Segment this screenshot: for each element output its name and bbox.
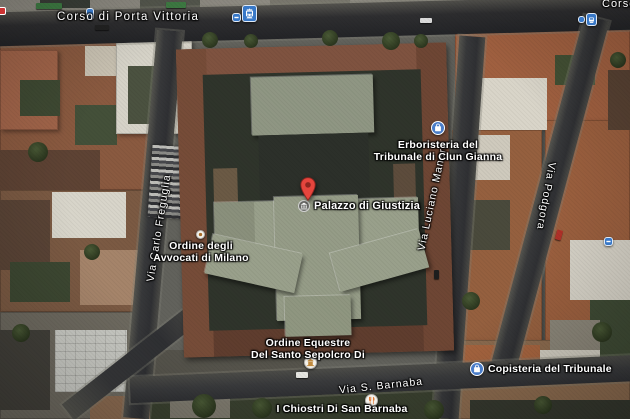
tram-vehicle <box>166 2 186 8</box>
vehicle <box>296 372 308 378</box>
tree <box>244 34 258 48</box>
tree <box>12 324 30 342</box>
rail-icon-fragment[interactable] <box>0 7 6 15</box>
poi-label-line: Tribunale di Clun Gianna <box>374 151 502 163</box>
tree <box>414 34 428 48</box>
poi-label-copisteria[interactable]: Copisteria del Tribunale <box>488 363 612 375</box>
vehicle <box>95 25 109 30</box>
tree <box>462 292 480 310</box>
transit-stop-icon[interactable] <box>578 16 585 23</box>
poi-label-palazzo-di-giustizia[interactable]: Palazzo di Giustizia <box>314 200 420 212</box>
poi-label-ordine-equestre[interactable]: Ordine Equestre Del Santo Sepolcro Di <box>251 337 365 361</box>
poi-dot-icon[interactable] <box>196 230 205 239</box>
poi-label-i-chiostri[interactable]: I Chiostri Di San Barnaba <box>276 403 407 415</box>
transit-stop-icon[interactable] <box>604 237 613 246</box>
shopping-bag-icon[interactable] <box>431 121 445 135</box>
palazzo-north-block <box>251 74 374 135</box>
poi-label-erboristeria[interactable]: Erboristeria del Tribunale di Clun Giann… <box>374 139 502 163</box>
street-label-corso-fragment: Corso di Porta Vittoria <box>602 0 630 10</box>
building-block <box>570 240 630 300</box>
tree <box>592 322 612 342</box>
courtyard <box>20 80 60 116</box>
poi-label-line: Erboristeria del <box>374 139 502 151</box>
vehicle <box>420 18 432 23</box>
tree <box>424 400 444 419</box>
building-block <box>52 192 126 238</box>
tree <box>84 244 100 260</box>
shopping-bag-icon[interactable] <box>470 362 484 376</box>
tram-station-icon[interactable] <box>586 13 597 26</box>
poi-label-ordine-avvocati[interactable]: Ordine degli Avvocati di Milano <box>153 240 248 264</box>
courthouse-icon[interactable] <box>298 200 310 212</box>
tree <box>610 52 626 68</box>
transit-stop-icon[interactable] <box>232 13 241 22</box>
tree <box>28 142 48 162</box>
tree <box>192 394 216 418</box>
courtyard <box>470 200 510 250</box>
tree <box>382 32 400 50</box>
poi-label-line: Del Santo Sepolcro Di <box>251 349 365 361</box>
satellite-map[interactable]: Corso di Porta Vittoria Corso di Porta V… <box>0 0 630 419</box>
tram-vehicle <box>36 3 62 9</box>
tram-station-icon[interactable] <box>242 5 257 22</box>
tree <box>202 32 218 48</box>
courtyard <box>10 262 70 302</box>
palazzo-south-block <box>285 295 352 337</box>
tree <box>534 396 552 414</box>
building-block <box>0 200 50 270</box>
red-map-pin[interactable] <box>300 177 316 201</box>
building-block <box>0 330 50 410</box>
poi-label-line: Avvocati di Milano <box>153 252 248 264</box>
tree <box>252 398 272 418</box>
tree <box>322 30 338 46</box>
street-label-corso-di-porta-vittoria: Corso di Porta Vittoria <box>57 11 199 23</box>
building-block <box>608 70 630 130</box>
courtyard <box>75 105 117 145</box>
building-block <box>0 150 100 190</box>
poi-label-line: Ordine Equestre <box>251 337 365 349</box>
poi-label-line: Ordine degli <box>153 240 248 252</box>
vehicle <box>434 270 439 279</box>
